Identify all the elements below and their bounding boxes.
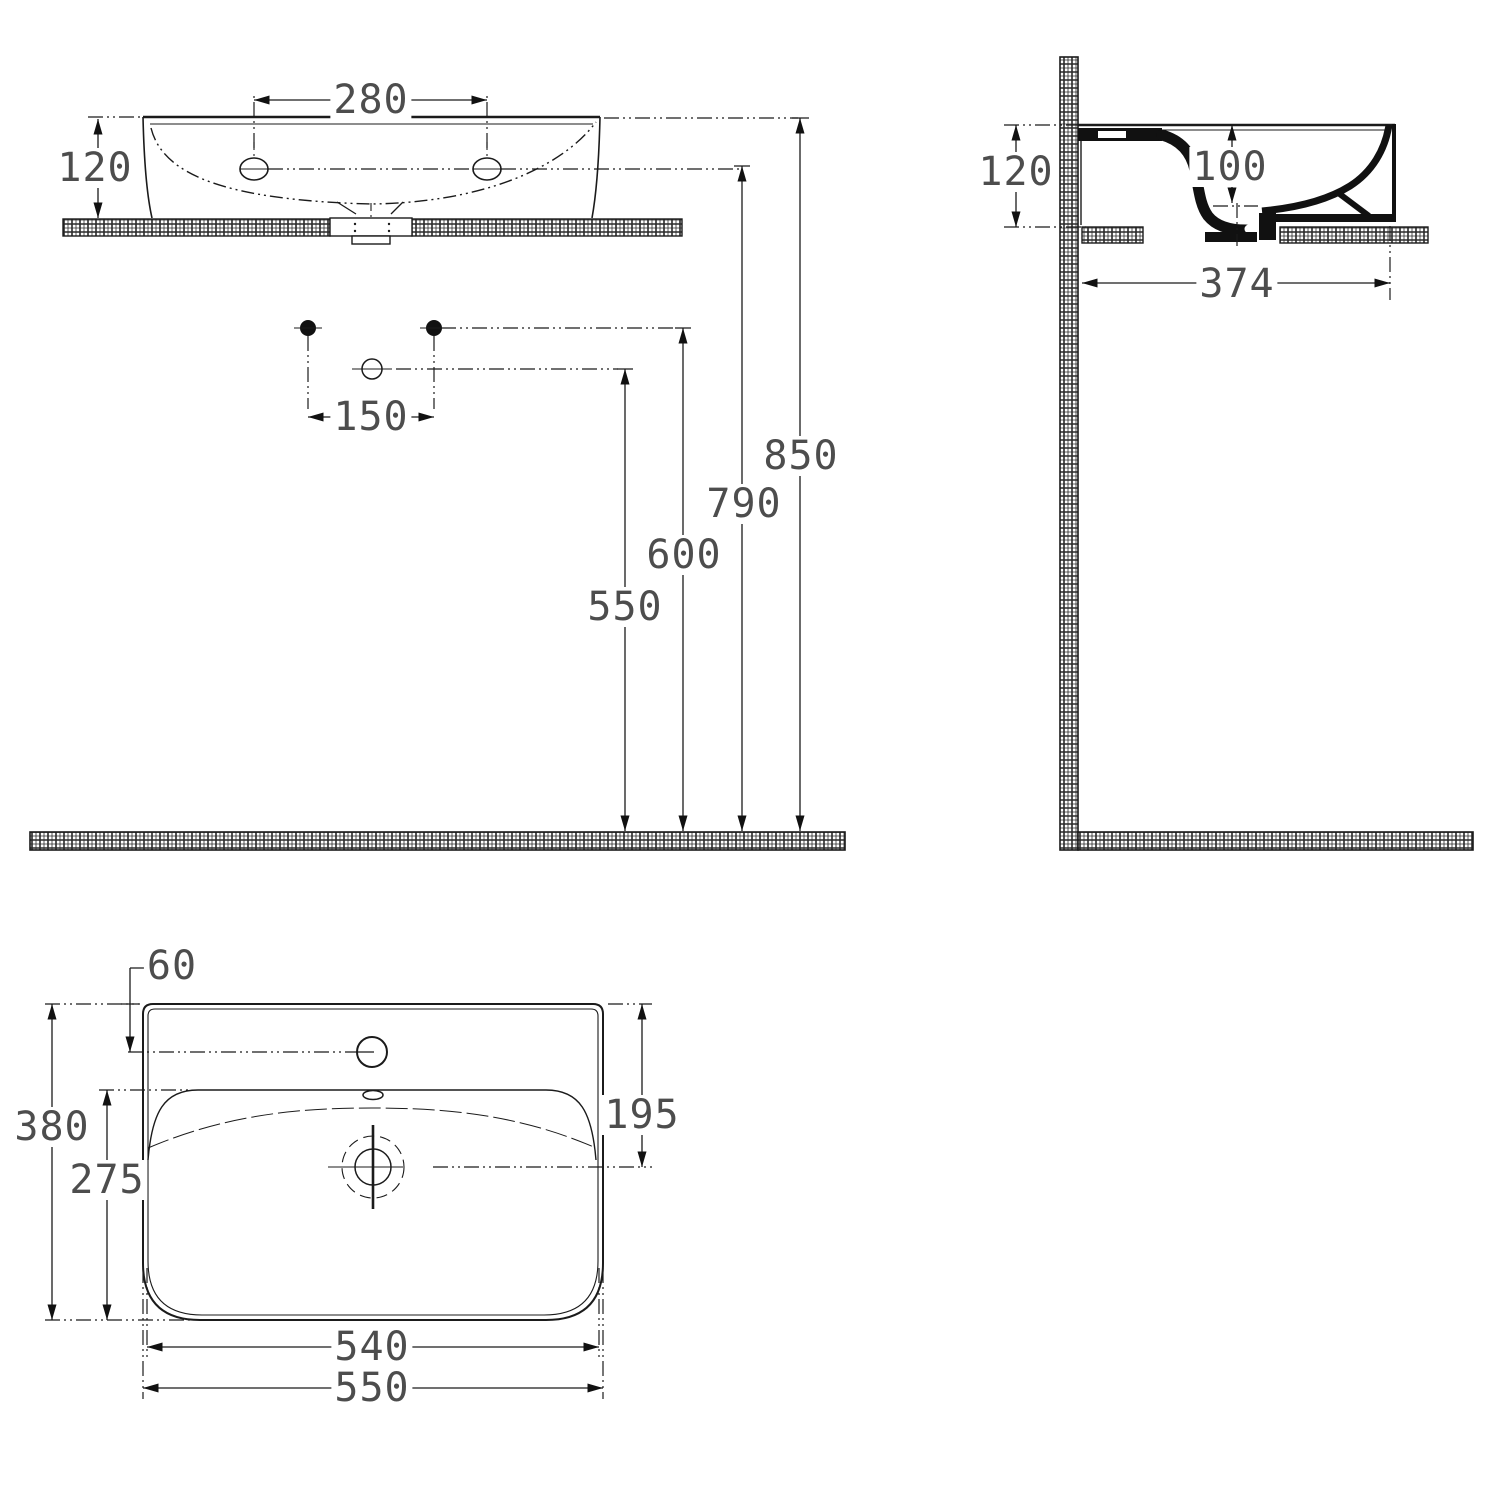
front-view (30, 94, 845, 850)
dim-label-rim-height: 850 (760, 436, 841, 476)
dim-label-tap-offset: 60 (144, 946, 200, 986)
washbasin-drawing (0, 0, 1500, 1500)
dim-label-overall-width: 550 (331, 1368, 412, 1408)
front-mounting-holes (240, 142, 501, 180)
dim-label-tap-spacing: 150 (330, 397, 411, 437)
side-floor-hatch (1078, 832, 1473, 850)
side-drain-flange (1259, 213, 1276, 240)
plan-faucet-hole (356, 1037, 387, 1067)
dim-label-front-basin-height: 120 (54, 148, 135, 188)
dim-label-inner-width: 540 (331, 1327, 412, 1367)
dim-label-side-basin-height: 120 (975, 152, 1056, 192)
dim-label-spout-height: 550 (584, 587, 665, 627)
dim-label-overall-depth: 380 (11, 1107, 92, 1147)
dim-label-hole-spacing: 280 (330, 80, 411, 120)
side-support-strut (1337, 192, 1369, 216)
plan-overflow-slot (363, 1091, 383, 1100)
dim-label-basin-projection: 374 (1196, 264, 1277, 304)
side-wall-hatch (1060, 57, 1078, 850)
dim-label-bowl-depth: 100 (1189, 147, 1270, 187)
front-trap-box (330, 218, 412, 244)
front-dimensions (98, 100, 809, 831)
technical-drawing-canvas: 280 120 150 850 790 600 550 120 100 374 … (0, 0, 1500, 1500)
front-bowl-curve (151, 122, 596, 204)
front-floor-hatch (30, 832, 845, 850)
side-bowl-wall (1262, 125, 1389, 211)
dim-label-drain-offset: 195 (601, 1095, 682, 1135)
dim-label-hole-height: 790 (703, 484, 784, 524)
dim-label-tap-height: 600 (643, 535, 724, 575)
plan-drain (328, 1125, 404, 1209)
front-centerlines (88, 94, 798, 409)
dim-label-bowl-length: 275 (66, 1160, 147, 1200)
front-tap-holes (294, 320, 448, 379)
